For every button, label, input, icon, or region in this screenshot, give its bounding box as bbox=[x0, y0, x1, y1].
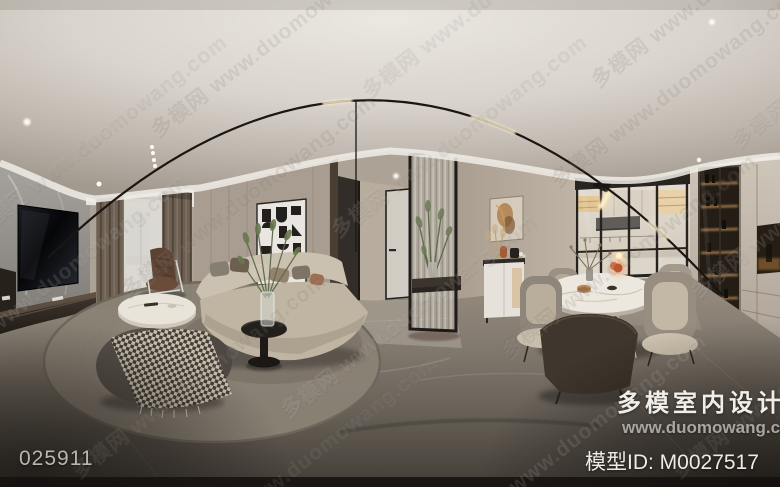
scene-id-label: 025911 bbox=[19, 447, 94, 471]
panorama-screenshot: 多模网 www.duomowang.com 多模网 www.duomowang.… bbox=[0, 0, 780, 487]
brand-url: www.duomowang.com bbox=[622, 418, 780, 438]
brand-title: 多模室内设计 bbox=[617, 383, 780, 418]
light-door bbox=[386, 189, 410, 299]
glass-partition bbox=[408, 149, 461, 341]
display-niche bbox=[757, 223, 780, 274]
hallway bbox=[338, 176, 412, 308]
model-id-label: 模型ID: M0027517 bbox=[585, 446, 759, 476]
